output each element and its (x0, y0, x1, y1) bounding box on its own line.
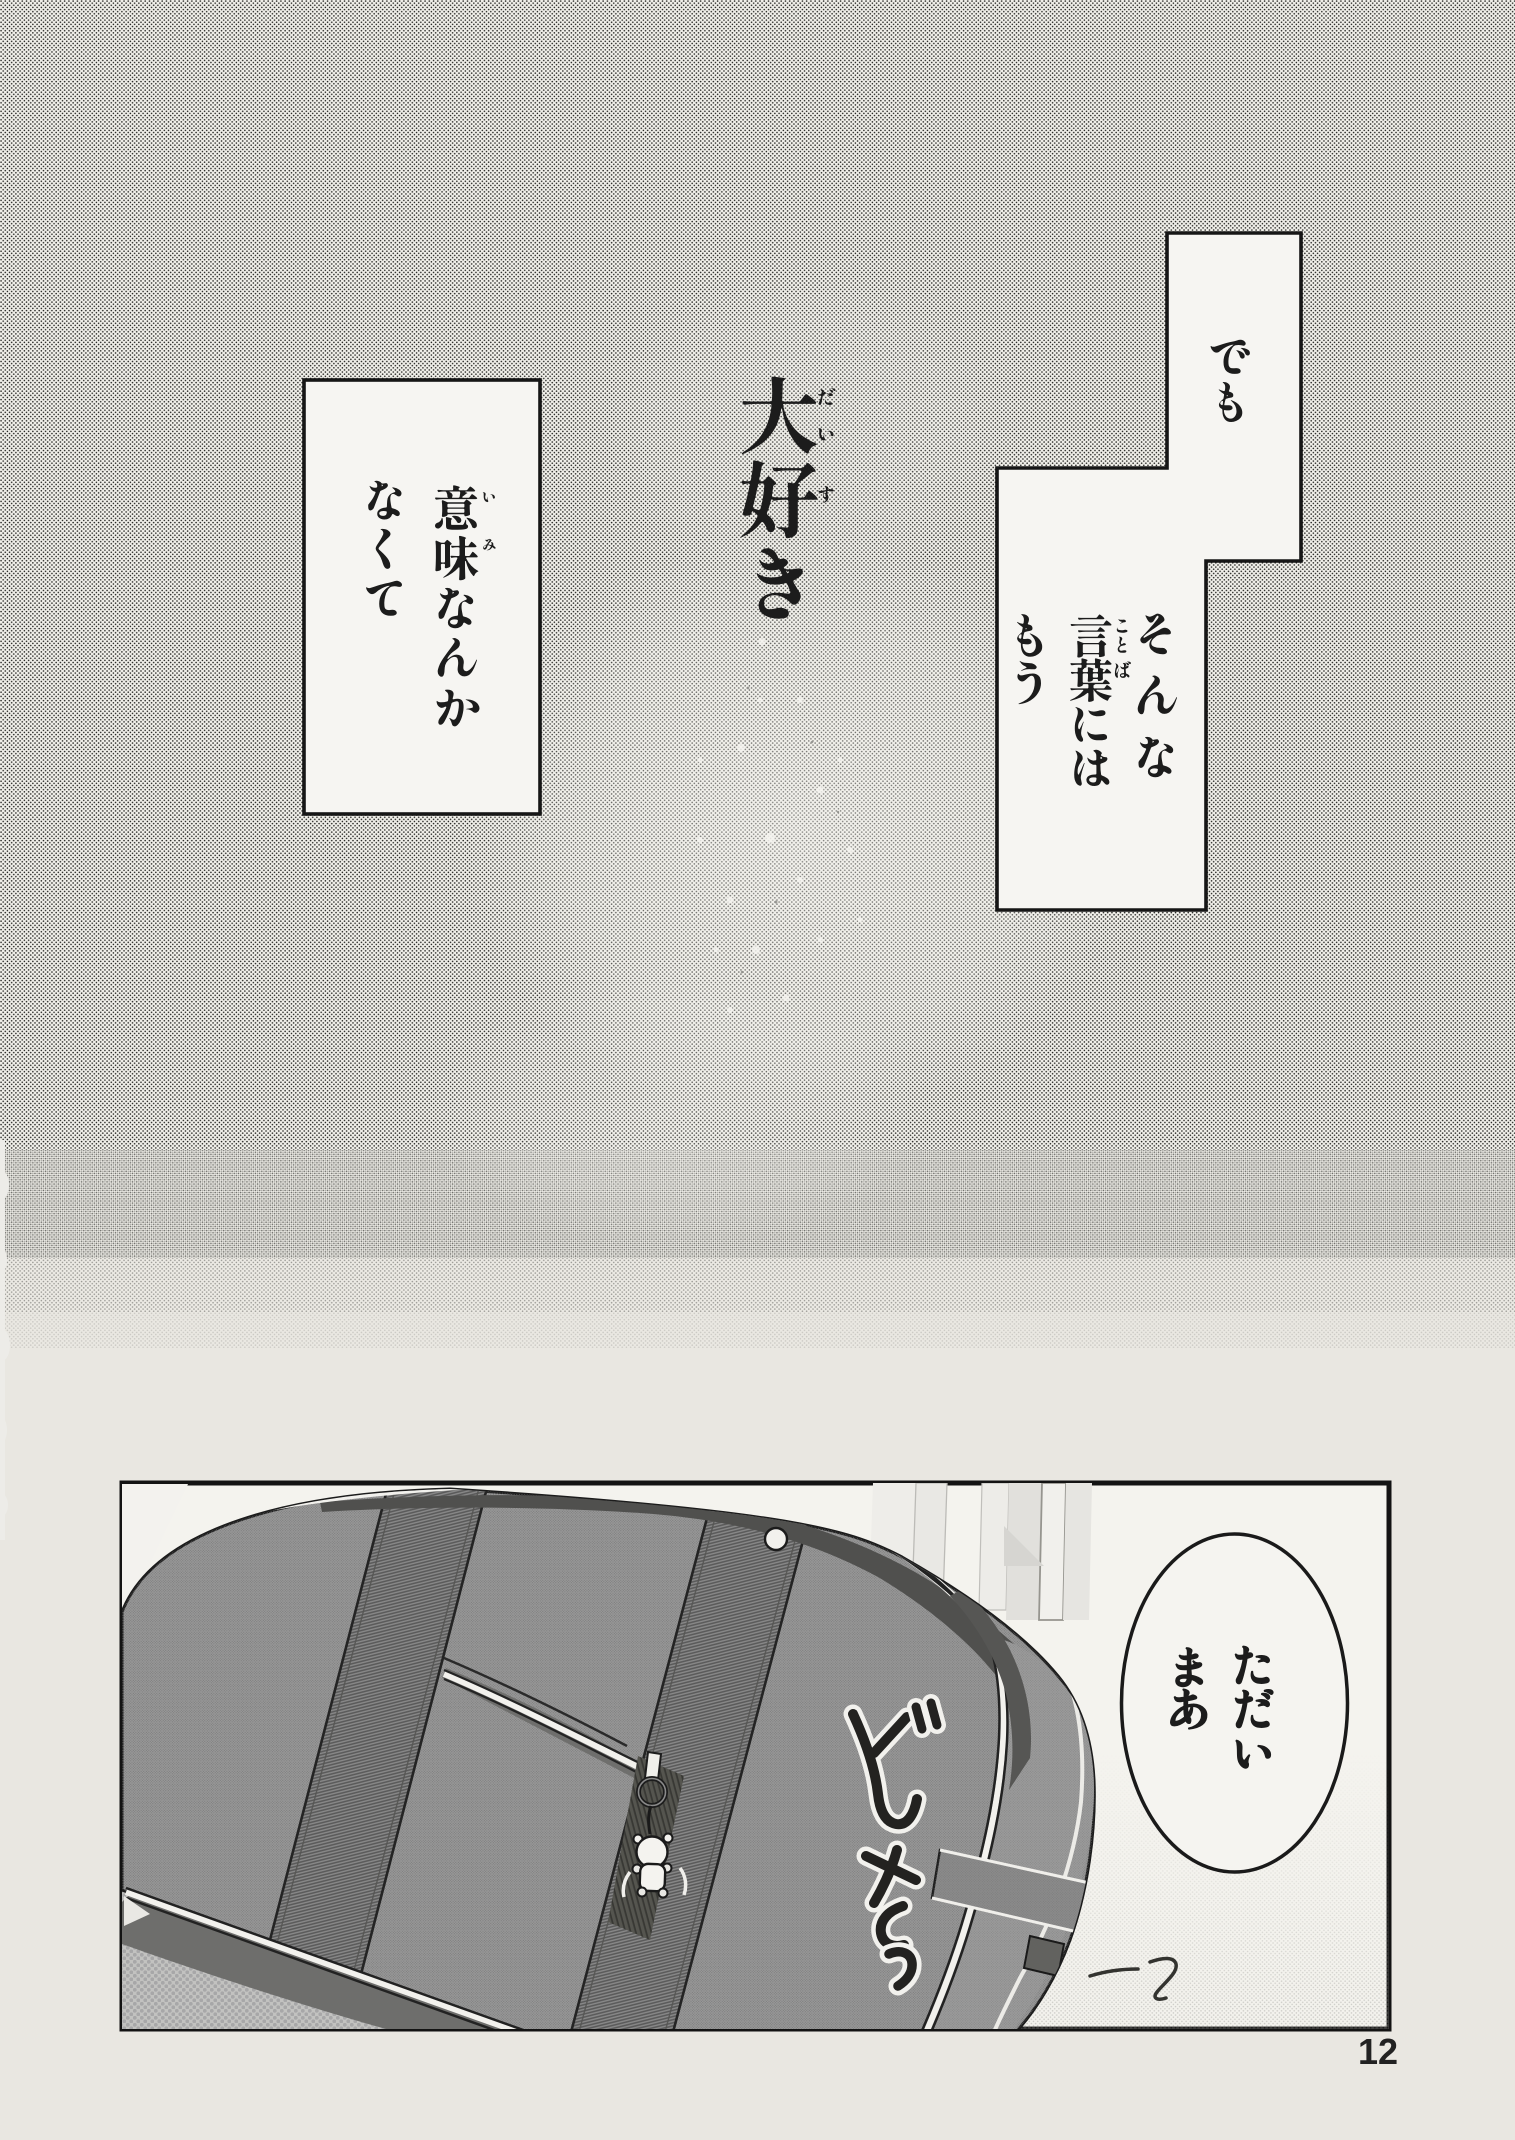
svg-text:12: 12 (1358, 2031, 1398, 2072)
